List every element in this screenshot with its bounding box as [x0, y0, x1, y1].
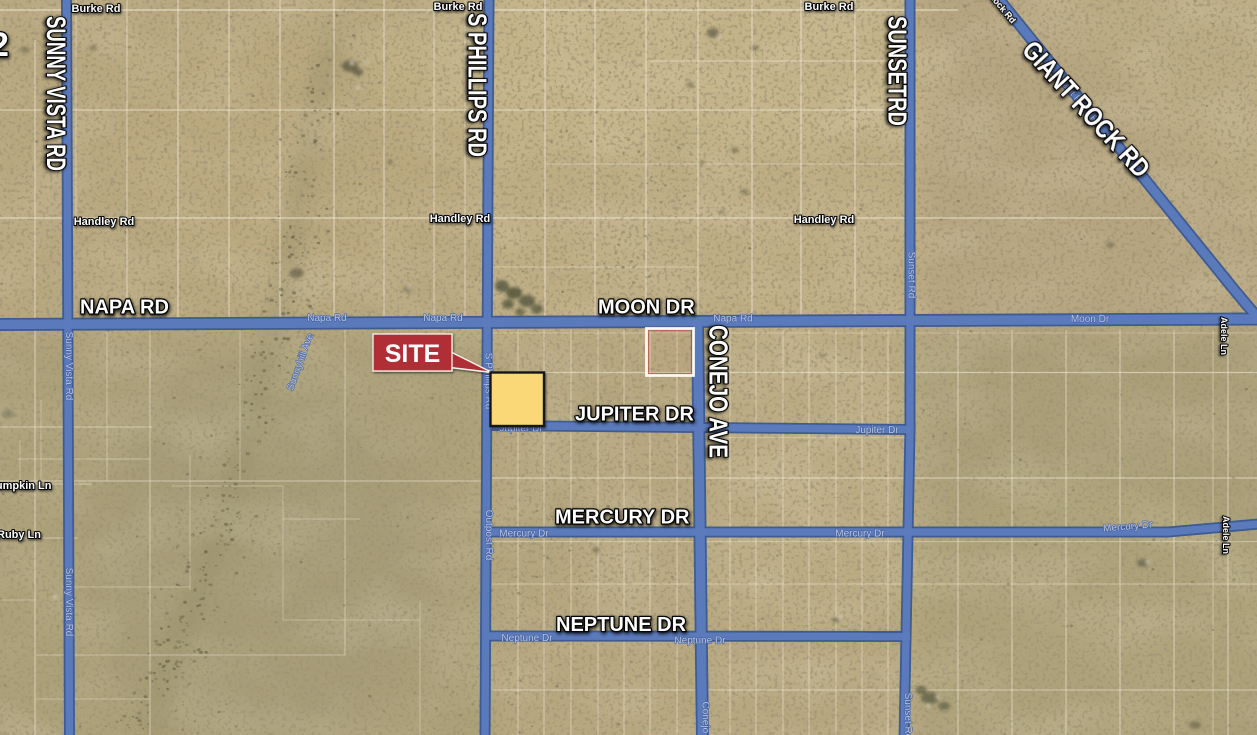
- svg-text:Adele Ln: Adele Ln: [1221, 516, 1231, 554]
- svg-text:Moon Dr: Moon Dr: [1071, 314, 1110, 325]
- svg-text:Sunny Vista Rd: Sunny Vista Rd: [63, 332, 74, 401]
- svg-text:Neptune Dr: Neptune Dr: [501, 633, 553, 644]
- svg-text:Mercury Dr: Mercury Dr: [499, 529, 549, 540]
- svg-text:S PHILLIPS RD: S PHILLIPS RD: [463, 13, 491, 157]
- svg-text:Neptune Dr: Neptune Dr: [674, 636, 726, 647]
- svg-text:JUPITER DR: JUPITER DR: [575, 404, 694, 426]
- svg-text:Ruby Ln: Ruby Ln: [0, 529, 41, 541]
- svg-text:Handley Rd: Handley Rd: [430, 213, 491, 225]
- svg-text:Handley Rd: Handley Rd: [794, 214, 855, 226]
- svg-text:Burke Rd: Burke Rd: [434, 1, 483, 13]
- svg-text:Sunset Rd: Sunset Rd: [902, 693, 913, 735]
- svg-text:Mercury Dr: Mercury Dr: [835, 529, 885, 540]
- svg-text:Adele Ln: Adele Ln: [1219, 317, 1229, 355]
- svg-text:2: 2: [0, 26, 9, 64]
- svg-text:Napa Rd: Napa Rd: [713, 314, 752, 325]
- svg-text:Handley Rd: Handley Rd: [74, 216, 135, 228]
- svg-text:Napa Rd: Napa Rd: [307, 313, 346, 324]
- svg-text:NEPTUNE DR: NEPTUNE DR: [556, 614, 687, 636]
- svg-text:Sunset Rd: Sunset Rd: [906, 252, 917, 299]
- svg-text:Burke Rd: Burke Rd: [805, 1, 854, 13]
- svg-text:Napa Rd: Napa Rd: [423, 313, 462, 324]
- svg-text:Outpost Rd: Outpost Rd: [483, 510, 494, 561]
- svg-text:SITE: SITE: [385, 340, 441, 368]
- svg-text:MOON DR: MOON DR: [598, 297, 695, 319]
- svg-text:Burke Rd: Burke Rd: [72, 3, 121, 15]
- svg-text:SUNSETRD: SUNSETRD: [883, 16, 911, 126]
- svg-text:Conejo Ave: Conejo Ave: [700, 702, 711, 735]
- svg-text:Sunny Vista Rd: Sunny Vista Rd: [63, 568, 74, 637]
- svg-text:Pumpkin Ln: Pumpkin Ln: [0, 480, 52, 492]
- svg-text:SUNNY VISTA RD: SUNNY VISTA RD: [41, 16, 71, 171]
- svg-text:Jupiter Dr: Jupiter Dr: [855, 425, 899, 436]
- svg-text:MERCURY DR: MERCURY DR: [555, 507, 690, 529]
- svg-text:CONEJO AVE: CONEJO AVE: [704, 325, 732, 458]
- svg-text:NAPA RD: NAPA RD: [80, 297, 169, 319]
